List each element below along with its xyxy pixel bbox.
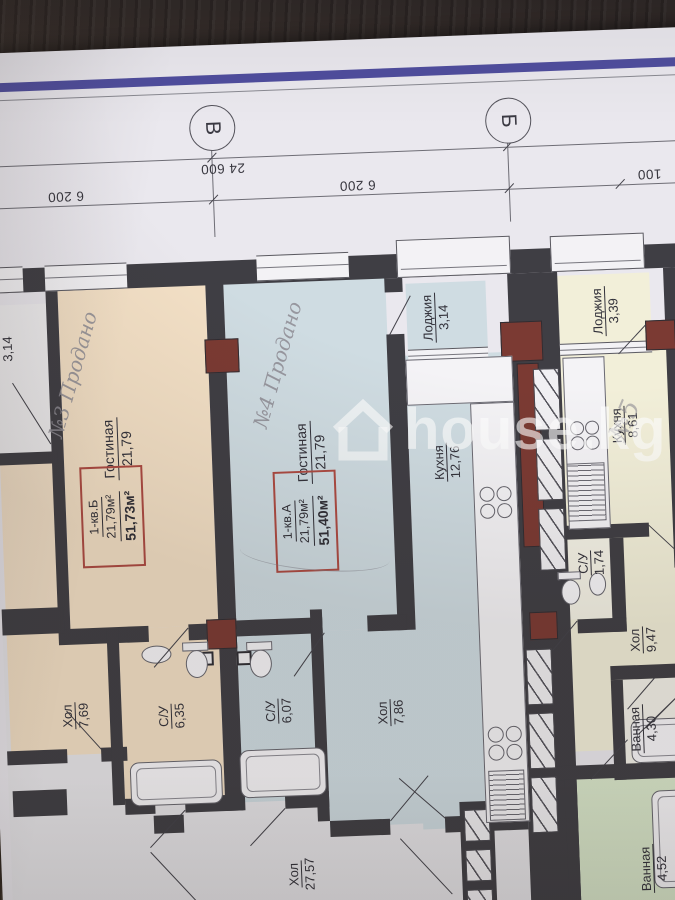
fridge (488, 770, 526, 821)
grid-axis-bubble-b: Б (484, 97, 532, 145)
dimension-label-span: 6 200 (47, 189, 84, 205)
room-label-bath-5: Ванная4,30 (627, 704, 660, 754)
wall (154, 815, 185, 834)
wall (384, 278, 403, 293)
window (256, 252, 349, 282)
wall (330, 819, 391, 837)
dimension-line (0, 139, 675, 169)
shaft-hatch (530, 776, 558, 833)
bay-window (550, 233, 645, 273)
stair-hatch (465, 849, 492, 882)
room-label-bath-green: Ванная4,52 (637, 844, 670, 894)
room-label-hall-common: Хол27,57 (286, 857, 319, 891)
watermark-text: house.kg (404, 401, 667, 459)
red-column (204, 338, 239, 373)
stair-hatch (467, 889, 494, 900)
house-icon (330, 398, 396, 462)
wall (2, 607, 65, 635)
wall (13, 789, 68, 817)
shaft-hatch (526, 648, 554, 705)
wall (367, 614, 407, 631)
floorplan-paper: В Б 24 600 6 200 6 200 100 (0, 26, 675, 900)
grid-axis-line (507, 142, 511, 222)
room-label-wc-5: С/У1,74 (575, 550, 608, 577)
dimension-line (0, 181, 675, 211)
room-label-loggia-5: Лоджия3,39 (589, 285, 623, 336)
shaft-hatch (538, 508, 566, 571)
red-column (529, 611, 558, 640)
toilet-tank (182, 642, 208, 652)
bathtub (239, 747, 327, 798)
room-label-loggia-a: Лоджия3,14 (419, 292, 453, 343)
room-label-hall-a: Хол7,86 (375, 698, 408, 726)
watermark: house.kg (330, 398, 667, 462)
shaft-hatch (528, 712, 556, 769)
room-label-wc-a: С/У6,07 (262, 698, 295, 725)
window (0, 266, 23, 293)
room-label-wc-b: С/У6,35 (156, 703, 189, 730)
apartment-stamp-b: 1-кв.Б 21,79м² 51,73м² (79, 465, 146, 568)
room-label-hall-5: Хол9,47 (627, 626, 660, 654)
wall (577, 618, 627, 634)
grid-axis-bubble-v: В (188, 104, 236, 152)
bay-window (396, 236, 511, 278)
room-label-edge-left: 3,14 (0, 336, 16, 362)
room-label-hall-b: Хол7,69 (59, 702, 92, 730)
wall (610, 663, 675, 680)
red-column (206, 618, 237, 649)
toilet-tank (246, 641, 272, 651)
window (44, 262, 127, 291)
wall (7, 749, 67, 765)
wall (0, 451, 58, 465)
dimension-label-span: 6 200 (339, 177, 376, 193)
dimension-label-total: 24 600 (200, 160, 245, 177)
bathtub (130, 759, 224, 806)
dimension-label-100: 100 (637, 166, 662, 182)
floorplan-photo: В Б 24 600 6 200 6 200 100 (0, 0, 675, 900)
red-column (645, 319, 675, 350)
fridge (566, 462, 606, 521)
